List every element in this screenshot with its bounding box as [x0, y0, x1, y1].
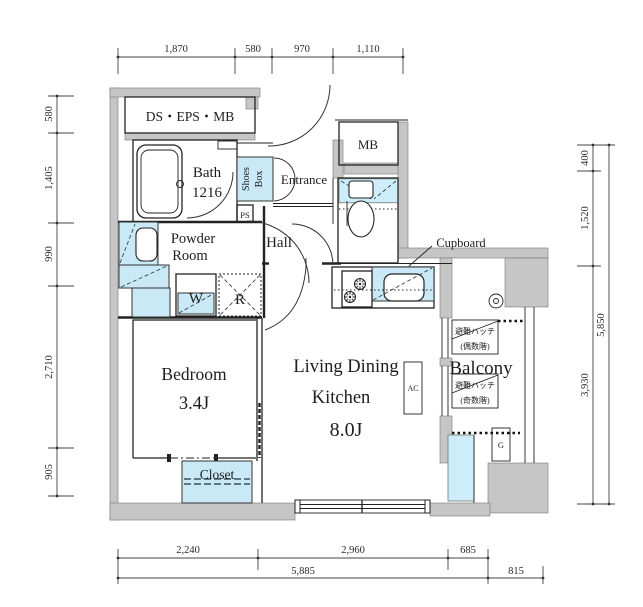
bath-label: Bath [193, 165, 222, 181]
dim-top: 1,870 580 970 1,110 [117, 44, 405, 74]
sink [384, 274, 424, 301]
meter-box-label: MB [358, 137, 379, 152]
pipe-space-label: PS [240, 210, 250, 220]
dim-top-4: 1,110 [356, 44, 379, 55]
bedroom-size-label: 3.4J [179, 394, 209, 414]
toilet-door-arc [292, 224, 333, 265]
floor-plan-drawing: DS・EPS・MB Bath 1216 Shoes Box Entrance M… [0, 0, 643, 607]
dim-bottom: 2,240 2,960 685 5,885 815 [117, 545, 545, 584]
ldk-door-arc [265, 267, 306, 330]
dim-right-3: 3,930 [580, 373, 591, 397]
shoes-box-label-2: Box [254, 171, 265, 188]
dim-bottom-3: 685 [460, 545, 476, 556]
bathtub-icon [137, 145, 184, 218]
ldk-south-window [295, 500, 430, 513]
dim-left-5: 905 [44, 464, 55, 480]
powder-room-label-2: Room [172, 248, 208, 264]
dim-right: 400 1,520 3,930 5,850 [577, 144, 615, 506]
dim-right-2: 1,520 [580, 206, 591, 230]
balcony-window-lower [442, 366, 448, 416]
dim-left-4: 2,710 [44, 355, 55, 379]
toilet-icon [339, 179, 398, 237]
dim-right-4: 5,850 [596, 313, 607, 337]
fixed-glass-panel [448, 435, 474, 501]
powder-room-label-1: Powder [171, 231, 215, 247]
ldk-label-1: Living Dining [293, 357, 398, 377]
shoes-box-label-1: Shoes [241, 167, 252, 191]
room-labels: DS・EPS・MB Bath 1216 Shoes Box Entrance M… [146, 109, 513, 482]
powder-cabinet [119, 265, 169, 288]
balcony-label: Balcony [449, 358, 513, 379]
floor-plan-page: DS・EPS・MB Bath 1216 Shoes Box Entrance M… [0, 0, 643, 607]
dim-left: 580 1,405 990 2,710 905 [44, 95, 74, 498]
entrance-door-arc [268, 85, 330, 146]
dim-top-1: 1,870 [164, 44, 188, 55]
dim-left-1: 580 [44, 106, 55, 122]
balcony-railing [525, 307, 534, 463]
powder-cabinet-2 [132, 288, 170, 317]
windows [295, 318, 448, 513]
gas-meter-label: G [498, 440, 504, 450]
hatch-even-label-1: 避難ハッチ [455, 326, 495, 336]
washer-label: W [189, 291, 204, 307]
ac-label: AC [407, 384, 418, 393]
refrigerator-label: R [235, 292, 245, 308]
bath-size-label: 1216 [192, 185, 223, 201]
dim-bottom-1: 2,240 [176, 545, 200, 556]
dim-top-2: 580 [245, 44, 261, 55]
fixtures [119, 145, 534, 503]
closet-label: Closet [200, 467, 235, 482]
entrance-label: Entrance [281, 172, 327, 187]
bath-room [133, 140, 237, 222]
balcony-window-upper [442, 318, 448, 358]
dim-left-3: 990 [44, 246, 55, 262]
dim-left-2: 1,405 [44, 166, 55, 190]
washbasin-icon [119, 222, 158, 265]
hatch-even-label-2: (偶数階) [460, 341, 490, 351]
ds-eps-mb-label: DS・EPS・MB [146, 109, 235, 124]
hall-label: Hall [266, 235, 292, 251]
dim-bottom-5: 815 [508, 566, 524, 577]
cupboard-label: Cupboard [436, 236, 486, 250]
hatch-odd-label-2: (奇数階) [460, 395, 490, 405]
dim-right-1: 400 [580, 150, 591, 166]
dim-bottom-2: 2,960 [341, 545, 365, 556]
kitchen-counter [332, 267, 434, 308]
ldk-size-label: 8.0J [330, 419, 363, 441]
dim-top-3: 970 [294, 44, 310, 55]
bedroom-label: Bedroom [161, 364, 227, 384]
drain-icon [489, 294, 503, 308]
dim-bottom-4: 5,885 [291, 566, 315, 577]
bath-vent [218, 141, 237, 149]
hatch-odd-label-1: 避難ハッチ [455, 380, 495, 390]
ldk-label-2: Kitchen [312, 388, 371, 408]
bedroom-walls [133, 320, 256, 458]
